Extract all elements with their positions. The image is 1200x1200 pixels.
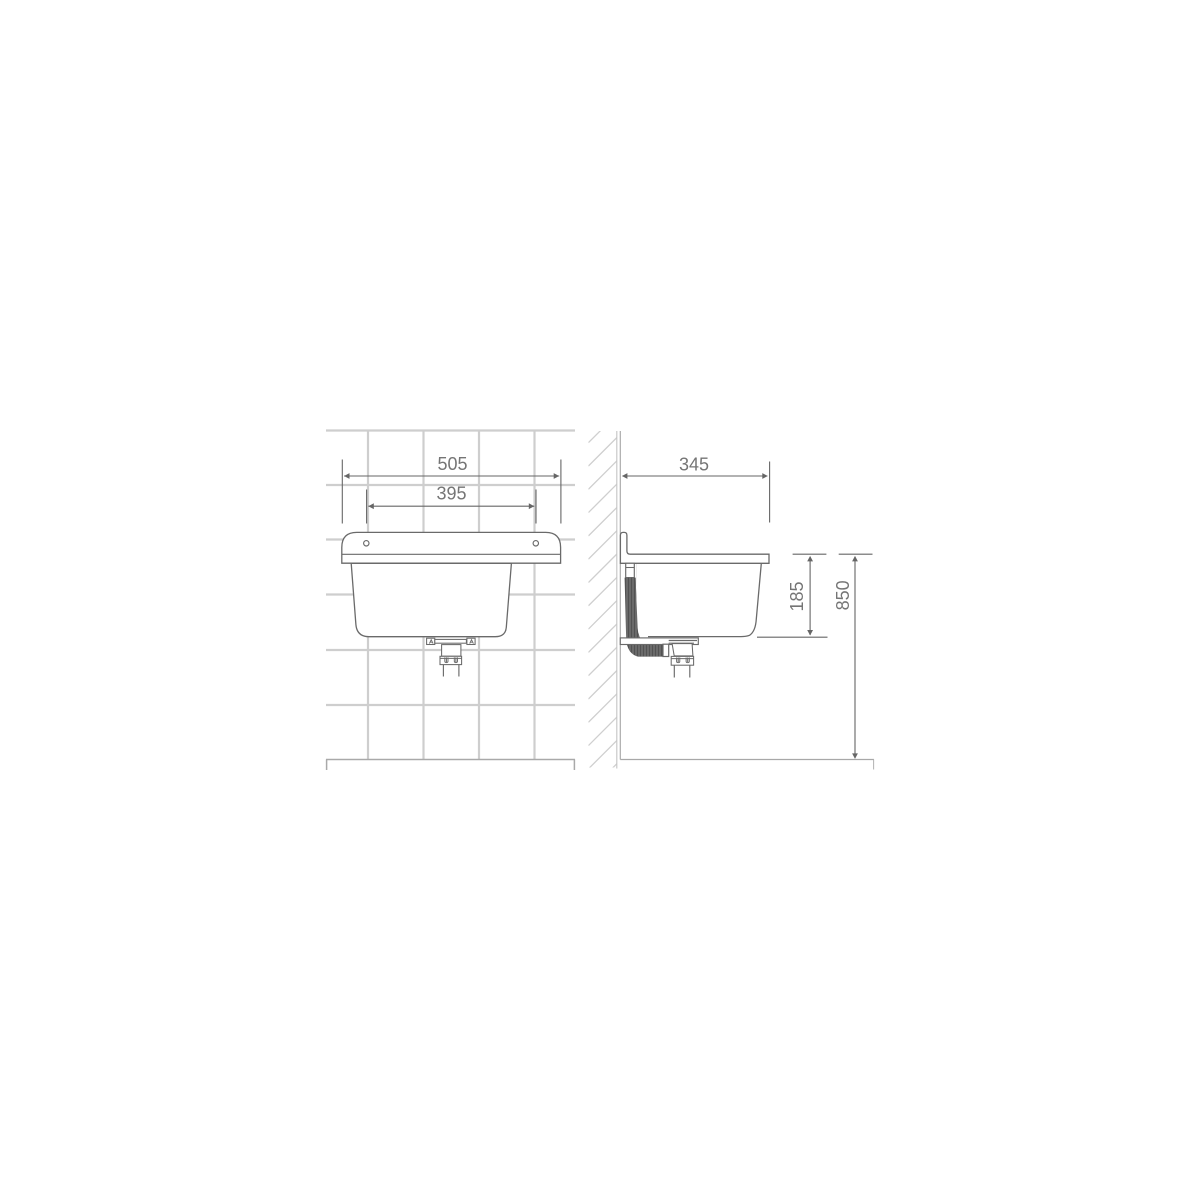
svg-text:850: 850	[833, 580, 853, 610]
svg-text:395: 395	[436, 484, 466, 504]
svg-text:345: 345	[679, 454, 709, 474]
svg-text:505: 505	[437, 454, 467, 474]
svg-text:185: 185	[787, 581, 807, 611]
